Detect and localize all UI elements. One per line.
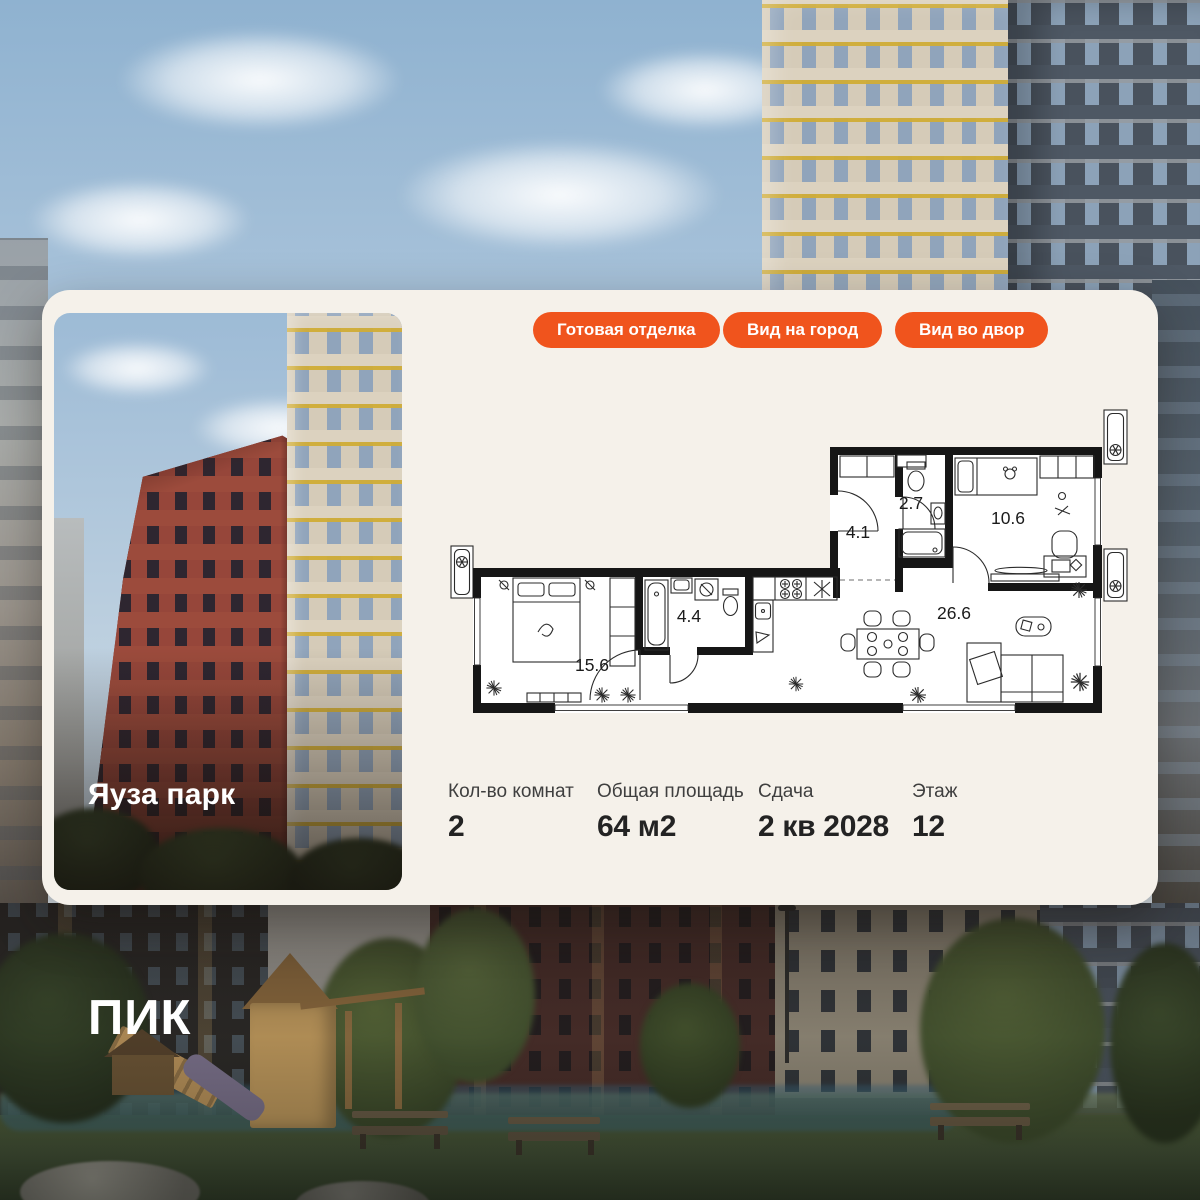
balcony xyxy=(1104,410,1127,464)
stat-delivery-label: Сдача xyxy=(758,781,889,803)
background-building-right-edge xyxy=(1152,280,1200,906)
plant-icon xyxy=(594,687,609,702)
background-courtyard xyxy=(0,903,1200,1200)
plant-icon xyxy=(910,687,926,703)
stat-delivery-value: 2 кв 2028 xyxy=(758,810,889,844)
plant-icon xyxy=(1071,582,1087,598)
project-photo[interactable]: Яуза парк xyxy=(54,313,402,890)
badge-city-view[interactable]: Вид на город xyxy=(723,312,882,348)
badge-finishing[interactable]: Готовая отделка xyxy=(533,312,720,348)
badge-yard-view[interactable]: Вид во двор xyxy=(895,312,1048,348)
screenshot-root: Яуза парк Готовая отделка Вид на город В… xyxy=(0,0,1200,1200)
stat-area-label: Общая площадь xyxy=(597,781,744,803)
stat-area: Общая площадь 64 м2 xyxy=(597,781,744,844)
stat-floor: Этаж 12 xyxy=(912,781,957,844)
plant-icon xyxy=(1071,673,1089,691)
project-name: Яуза парк xyxy=(88,778,235,812)
stat-area-value: 64 м2 xyxy=(597,810,744,844)
room-area-hallway: 4.1 xyxy=(846,522,870,542)
stat-floor-label: Этаж xyxy=(912,781,957,803)
stat-floor-value: 12 xyxy=(912,810,957,844)
pik-logo: ПИК xyxy=(88,990,191,1046)
stat-rooms: Кол-во комнат 2 xyxy=(448,781,574,844)
room-area-bathroom: 4.4 xyxy=(677,606,702,626)
dusk-overlay xyxy=(0,903,1200,1200)
plant-icon xyxy=(620,687,635,702)
balcony xyxy=(451,546,473,598)
stat-rooms-value: 2 xyxy=(448,810,574,844)
room-area-wc: 2.7 xyxy=(899,493,923,513)
balcony xyxy=(1104,549,1127,601)
background-building-dark xyxy=(1008,0,1200,310)
room-area-bedroom: 15.6 xyxy=(575,655,609,675)
room-area-bedroom-small: 10.6 xyxy=(991,508,1025,528)
room-area-kitchen-living: 26.6 xyxy=(937,603,971,623)
stat-delivery: Сдача 2 кв 2028 xyxy=(758,781,889,844)
background-building-left-edge xyxy=(0,238,48,906)
floor-plan[interactable]: 4.1 2.7 10.6 4.4 15.6 26.6 xyxy=(440,405,1140,750)
stat-rooms-label: Кол-во комнат xyxy=(448,781,574,803)
plant-icon xyxy=(486,680,501,695)
background-building-beige xyxy=(762,0,1008,300)
plant-icon xyxy=(789,677,803,691)
